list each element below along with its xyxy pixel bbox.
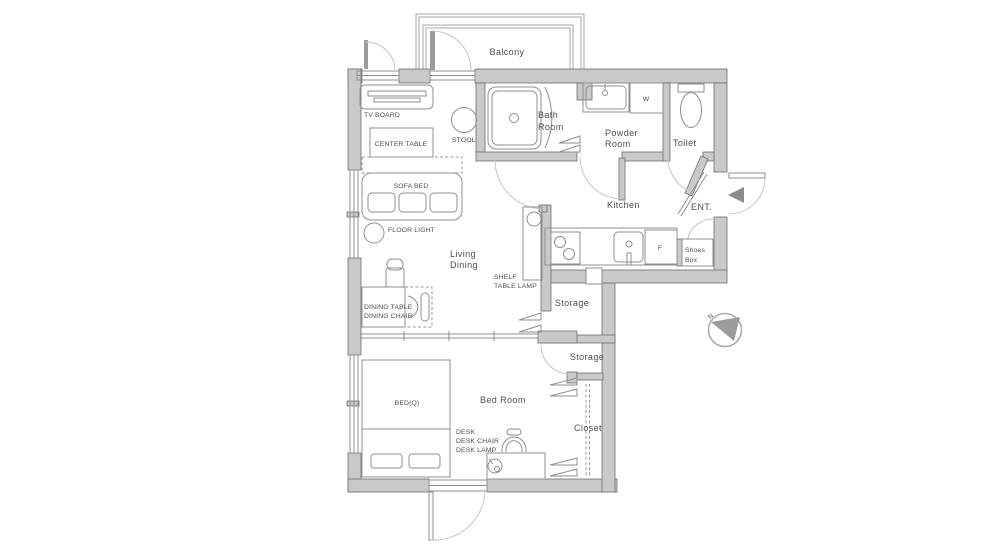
door-leaf-entrance: [729, 173, 765, 178]
label-fridge: F: [658, 245, 662, 252]
dining-chair-seat: [386, 268, 404, 287]
kitchen-faucet-stem: [627, 253, 631, 265]
room-label-kitchen: Kitchen: [607, 200, 640, 210]
window-mullion-tick: [347, 212, 359, 217]
railing-line: [416, 14, 584, 69]
kitchen-faucet: [626, 241, 632, 247]
room-label-living-dining: Living: [450, 249, 476, 259]
pillow: [371, 454, 402, 468]
compass-icon: N: [707, 312, 741, 346]
sofa-cushion: [368, 193, 395, 212]
window-mullion-tick: [347, 401, 359, 406]
desk-chair-back: [507, 429, 521, 435]
label-washer: W: [643, 96, 650, 103]
table-lamp-symbol: [527, 212, 541, 226]
wall-segment: [577, 373, 603, 380]
balcony-railing: [416, 14, 584, 69]
bathtub-inner: [492, 91, 537, 145]
label-tv-board: TV BOARD: [364, 112, 400, 119]
wall-segment: [348, 258, 361, 355]
bifold-door-closet: [550, 458, 577, 476]
label-dining-chair: DINING CHAIR: [364, 313, 413, 320]
label-shoes-box: Box: [685, 257, 698, 264]
room-label-storage-upper: Storage: [555, 298, 589, 308]
floor-plan: N Balcony Bath Room Powder Room Toilet K…: [0, 0, 992, 558]
stove: [551, 232, 580, 264]
room-label-powder: Room: [605, 139, 631, 149]
room-label-living-dining: Dining: [450, 260, 478, 270]
label-table-lamp: TABLE LAMP: [494, 283, 537, 290]
label-shoes-box: Shoes: [685, 247, 705, 254]
door-arc: [495, 160, 544, 209]
label-stool: STOOL: [452, 137, 476, 144]
wall-segment: [543, 270, 727, 283]
door-leaf-toilet: [685, 156, 708, 196]
powder-faucet-knob: [603, 91, 608, 96]
door-arc: [431, 492, 485, 540]
sliding-partition: [360, 331, 538, 341]
room-label-bed-room: Bed Room: [480, 395, 526, 405]
door-leaf-balcony: [430, 31, 435, 70]
door-arc: [366, 42, 395, 70]
desk: [487, 453, 545, 479]
toilet-bowl: [681, 93, 702, 128]
desk-chair-inner: [506, 441, 522, 452]
tv: [368, 91, 426, 96]
wall-segment: [714, 217, 727, 273]
bathtub-drain: [510, 114, 519, 123]
room-label-bath: Bath: [538, 110, 558, 120]
floor-light: [364, 223, 384, 243]
stove-burner: [564, 249, 575, 260]
bathtub: [488, 87, 541, 149]
sofa-bed-extension: [362, 157, 462, 173]
door-leaf-powder: [619, 158, 625, 200]
door-leaf-bedroom-balcony: [429, 492, 433, 540]
wall-segment: [348, 479, 429, 492]
room-label-entrance: ENT.: [691, 202, 712, 212]
door-arc: [580, 157, 622, 199]
labels: Balcony Bath Room Powder Room Toilet Kit…: [364, 47, 712, 454]
sofa-bed: [362, 173, 462, 220]
door-arc: [432, 31, 471, 70]
label-shelf: SHELF: [494, 274, 517, 281]
bed: [362, 360, 450, 477]
label-center-table: CENTER TABLE: [375, 141, 428, 148]
room-label-storage-lower: Storage: [570, 352, 604, 362]
dining-chair-back: [421, 293, 429, 321]
label-sofa-bed: SOFA BED: [394, 183, 429, 190]
wall-segment: [487, 479, 617, 492]
sofa-cushion: [430, 193, 457, 212]
label-floor-light: FLOOR LIGHT: [388, 227, 435, 234]
label-desk-chair: DESK CHAIR: [456, 438, 499, 445]
room-label-powder: Powder: [605, 128, 638, 138]
room-label-closet: Closet: [574, 423, 602, 433]
label-dining-table: DINING TABLE: [364, 304, 413, 311]
wall-segment: [475, 69, 727, 83]
desk-lamp-head: [495, 467, 500, 472]
duct-column: [586, 268, 602, 284]
tv-stand: [374, 98, 420, 102]
sofa-cushion: [399, 193, 426, 212]
wall-segment: [602, 283, 615, 492]
shelf-unit: [523, 207, 542, 280]
entrance-arrow-icon: [728, 187, 744, 203]
room-label-toilet: Toilet: [673, 138, 697, 148]
wall-segment: [622, 152, 668, 161]
room-label-balcony: Balcony: [490, 47, 525, 57]
wall-segment: [663, 83, 670, 161]
wall-segment: [399, 69, 430, 83]
door-arc: [541, 345, 570, 374]
floor-plan-drawing: N Balcony Bath Room Powder Room Toilet K…: [0, 0, 992, 558]
toilet-tank: [678, 84, 704, 92]
bifold-door-bath: [559, 136, 580, 152]
door-arc: [668, 158, 687, 190]
label-desk-lamp: DESK LAMP: [456, 447, 497, 454]
room-label-bath: Room: [538, 122, 564, 132]
wall-segment: [476, 152, 577, 161]
pillow: [409, 454, 440, 468]
door-leaf-casement-window: [364, 40, 368, 69]
doors: [360, 31, 765, 540]
bifold-door-storage: [519, 313, 541, 332]
wall-segment: [348, 69, 361, 170]
wall-segment: [476, 83, 485, 152]
wall-segment: [538, 331, 577, 343]
label-bed: BED(Q): [395, 400, 420, 407]
stove-burner: [555, 237, 566, 248]
stool: [452, 108, 477, 133]
windows: [350, 71, 487, 491]
tv-board: [360, 85, 433, 109]
label-desk: DESK: [456, 429, 475, 436]
wall-segment: [714, 83, 727, 172]
